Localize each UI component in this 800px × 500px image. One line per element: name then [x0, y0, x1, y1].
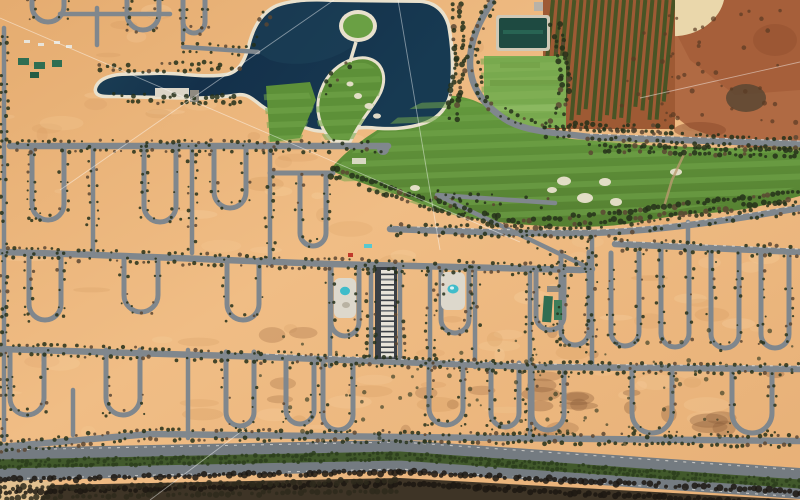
- aerial-photo: [0, 0, 800, 500]
- aerial-photo-canvas: [0, 0, 800, 500]
- red-container: [348, 253, 353, 257]
- reservoir-pond: [496, 15, 550, 51]
- showhome-pool-compound-left: [334, 278, 356, 318]
- small-pool-under-construction: [364, 244, 372, 248]
- showhome-pool-compound-right: [441, 272, 465, 310]
- townhouse-row: [375, 267, 397, 359]
